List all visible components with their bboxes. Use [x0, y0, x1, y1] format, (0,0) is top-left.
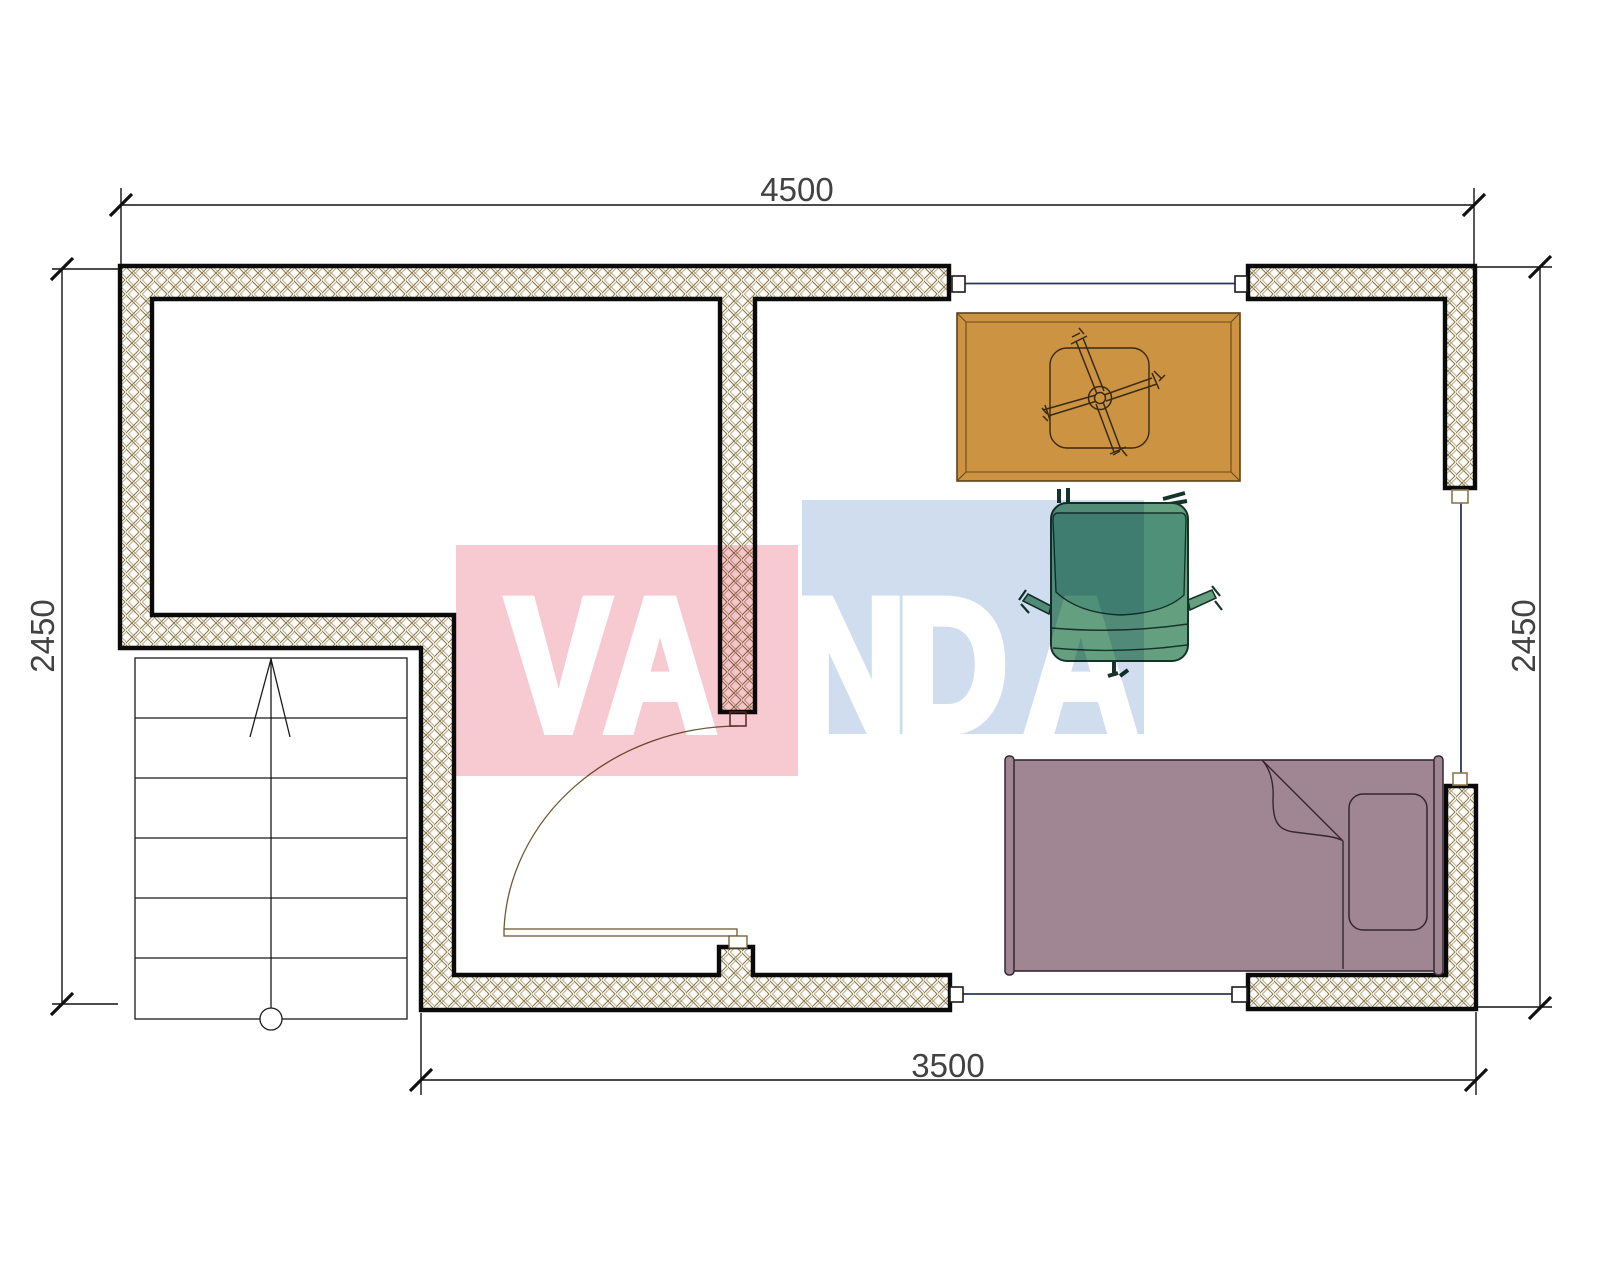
svg-text:4500: 4500 [760, 171, 833, 208]
svg-text:2450: 2450 [1505, 599, 1542, 672]
svg-text:3500: 3500 [911, 1047, 984, 1084]
svg-text:VANDA: VANDA [507, 560, 1136, 770]
svg-text:2450: 2450 [24, 599, 61, 672]
